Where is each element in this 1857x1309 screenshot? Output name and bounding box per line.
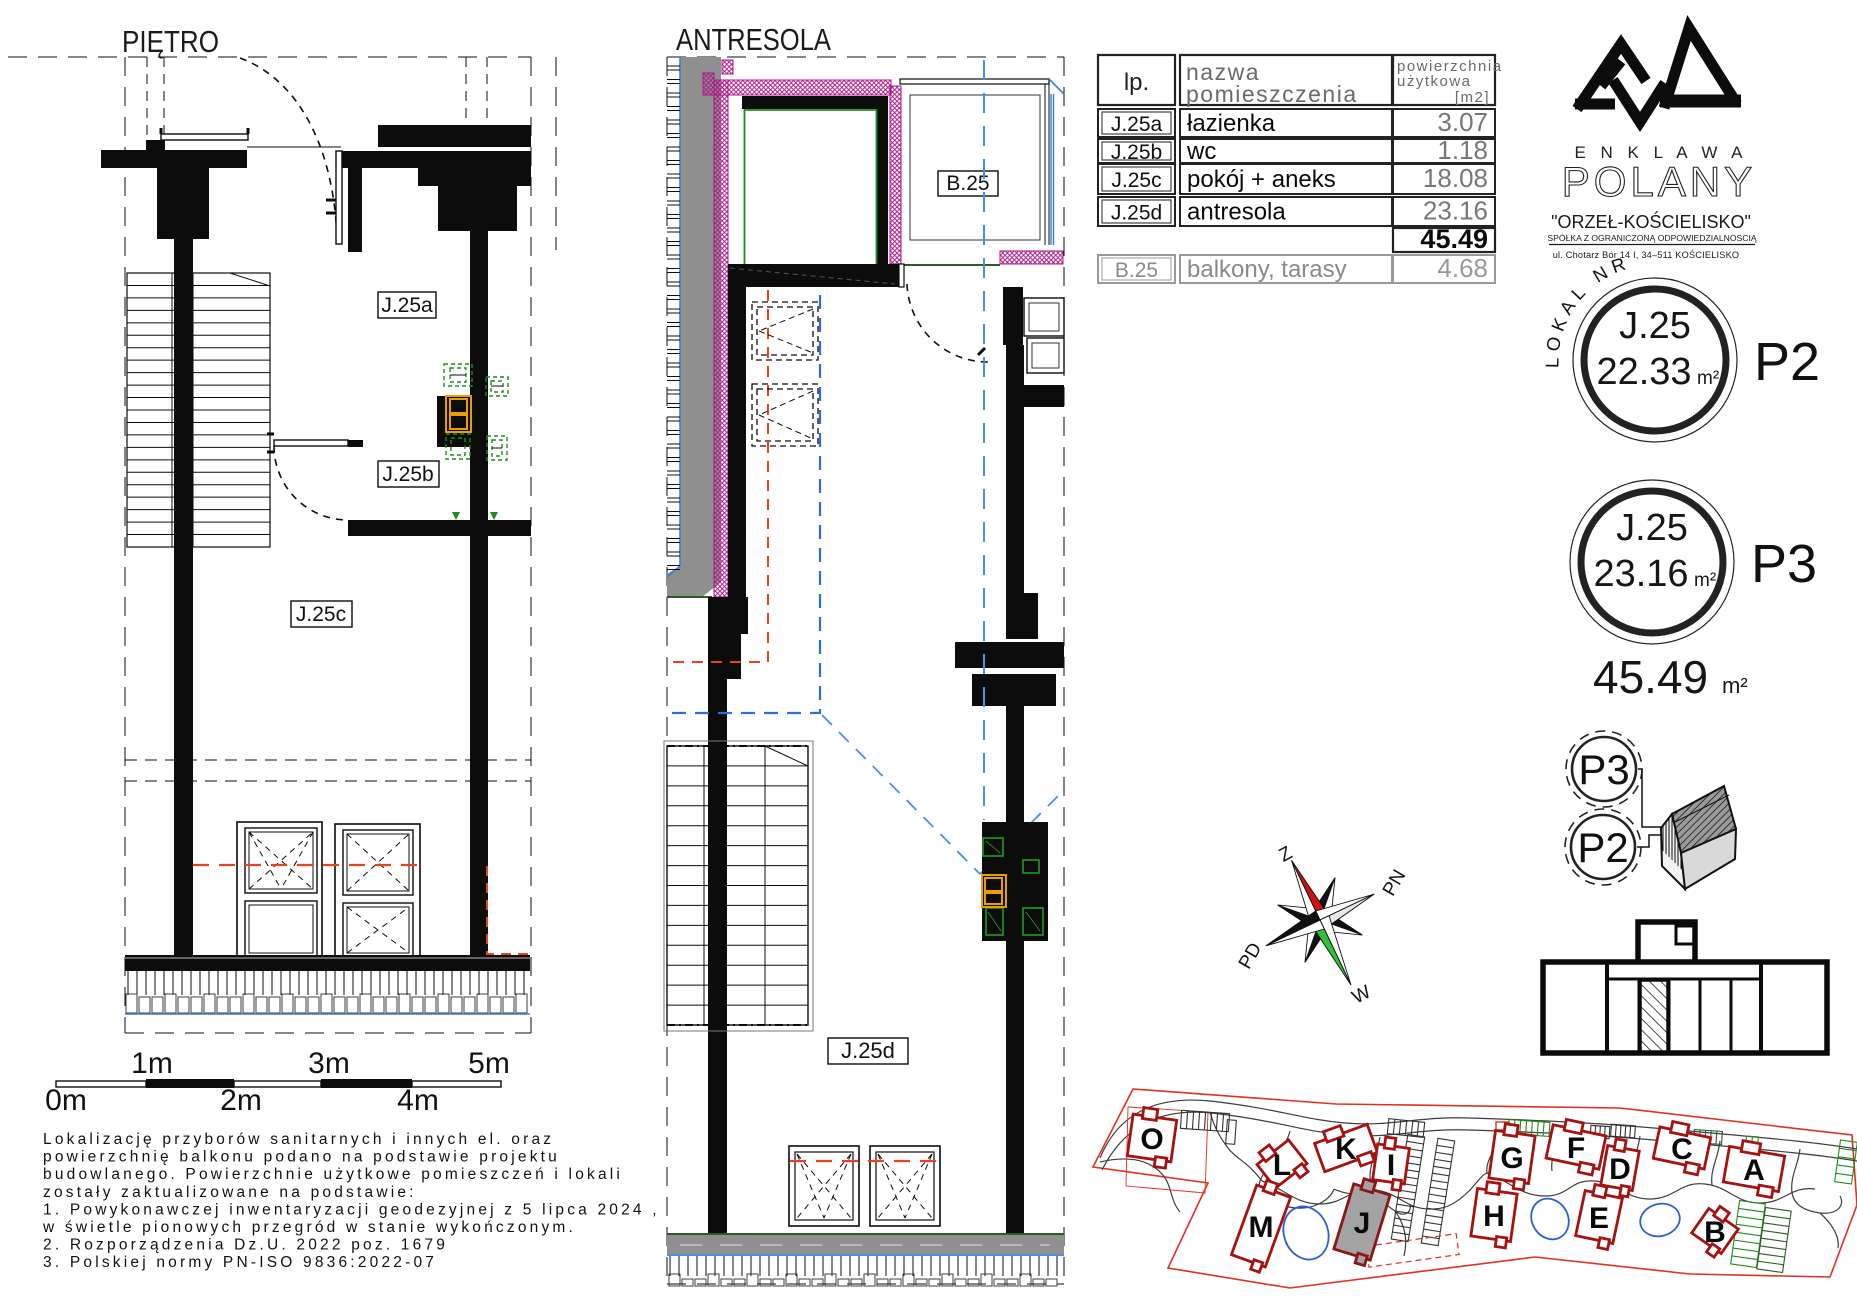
svg-text:łazienka: łazienka	[1187, 110, 1276, 137]
svg-text:J.25b: J.25b	[382, 463, 433, 486]
svg-text:B.25: B.25	[1115, 259, 1158, 282]
svg-text:ANTRESOLA: ANTRESOLA	[676, 22, 831, 57]
svg-text:1. Powykonawczej inwentaryzacj: 1. Powykonawczej inwentaryzacji geodezyj…	[43, 1201, 660, 1218]
svg-text:2m: 2m	[220, 1084, 262, 1117]
svg-text:POLANY: POLANY	[1562, 158, 1756, 205]
svg-text:L: L	[1273, 1149, 1291, 1182]
svg-text:powierzchnię balkonu podano na: powierzchnię balkonu podano na podstawie…	[43, 1149, 560, 1166]
svg-text:45.49: 45.49	[1593, 651, 1708, 703]
svg-text:antresola: antresola	[1187, 199, 1286, 226]
svg-text:zostały zaktualizowane na pods: zostały zaktualizowane na podstawie:	[43, 1184, 417, 1201]
svg-text:J.25c: J.25c	[296, 603, 346, 626]
svg-text:2. Rozporządzenia Dz.U. 2022 p: 2. Rozporządzenia Dz.U. 2022 poz. 1679	[43, 1237, 448, 1254]
svg-text:H: H	[1483, 1200, 1505, 1233]
svg-text:1.18: 1.18	[1437, 135, 1488, 165]
svg-text:lp.: lp.	[1124, 69, 1149, 96]
svg-text:22.33: 22.33	[1596, 351, 1691, 393]
svg-text:D: D	[1609, 1153, 1631, 1186]
svg-text:3. Polskiej normy PN-ISO 9836:: 3. Polskiej normy PN-ISO 9836:2022-07	[43, 1254, 437, 1271]
svg-text:J.25d: J.25d	[1111, 202, 1162, 225]
svg-text:3.07: 3.07	[1437, 107, 1488, 137]
svg-text:P3: P3	[1578, 746, 1629, 793]
svg-text:pokój + aneks: pokój + aneks	[1187, 166, 1336, 193]
svg-text:A: A	[1743, 1154, 1765, 1187]
svg-text:18.08: 18.08	[1423, 163, 1488, 193]
svg-text:J.25a: J.25a	[381, 294, 433, 317]
svg-text:J.25: J.25	[1616, 507, 1688, 549]
svg-text:Lokalizację przyborów sanitarn: Lokalizację przyborów sanitarnych i inny…	[43, 1131, 554, 1148]
svg-text:1m: 1m	[131, 1047, 173, 1080]
svg-text:4m: 4m	[397, 1084, 439, 1117]
svg-text:P2: P2	[1754, 332, 1820, 392]
svg-text:G: G	[1500, 1142, 1523, 1175]
svg-text:23.16: 23.16	[1423, 196, 1488, 226]
svg-text:K: K	[1335, 1133, 1357, 1166]
svg-text:E: E	[1589, 1202, 1609, 1235]
svg-text:P3: P3	[1751, 534, 1817, 594]
svg-text:użytkowa: użytkowa	[1397, 73, 1472, 90]
svg-text:5m: 5m	[468, 1047, 510, 1080]
svg-text:J.25a: J.25a	[1111, 113, 1163, 136]
svg-text:0m: 0m	[45, 1084, 87, 1117]
svg-text:C: C	[1671, 1133, 1693, 1166]
svg-text:pomieszczenia: pomieszczenia	[1186, 81, 1358, 107]
svg-text:m²: m²	[1722, 673, 1748, 698]
svg-text:ul. Chotarz Bór 14 I, 34–511 K: ul. Chotarz Bór 14 I, 34–511 KOŚCIELISKO	[1553, 249, 1740, 260]
svg-text:[m2]: [m2]	[1455, 89, 1490, 106]
svg-text:SPÓŁKA Z OGRANICZONĄ ODPOWIEDZ: SPÓŁKA Z OGRANICZONĄ ODPOWIEDZIALNOSCIĄ	[1547, 233, 1756, 243]
svg-text:23.16: 23.16	[1593, 553, 1688, 595]
svg-text:PIĘTRO: PIĘTRO	[122, 24, 219, 59]
svg-text:O: O	[1140, 1123, 1163, 1156]
svg-text:I: I	[1387, 1149, 1395, 1182]
svg-text:45.49: 45.49	[1420, 224, 1488, 254]
svg-text:B: B	[1704, 1216, 1726, 1249]
svg-text:M: M	[1249, 1211, 1274, 1244]
svg-text:4.68: 4.68	[1437, 253, 1488, 283]
svg-text:"ORZEŁ-KOŚCIELISKO": "ORZEŁ-KOŚCIELISKO"	[1551, 211, 1751, 232]
svg-text:wc: wc	[1186, 138, 1216, 165]
svg-text:budowlanego. Powierzchnie użyt: budowlanego. Powierzchnie użytkowe pomie…	[43, 1166, 623, 1183]
svg-text:3m: 3m	[308, 1047, 350, 1080]
svg-text:F: F	[1567, 1132, 1585, 1165]
svg-text:P2: P2	[1577, 824, 1628, 871]
svg-text:J.25: J.25	[1619, 305, 1691, 347]
svg-text:J.25c: J.25c	[1111, 169, 1161, 192]
svg-text:balkony, tarasy: balkony, tarasy	[1187, 256, 1347, 283]
svg-text:w świetle pionowych przegród w: w świetle pionowych przegród w stanie wy…	[42, 1219, 576, 1236]
svg-text:J.25d: J.25d	[841, 1038, 895, 1063]
svg-text:J: J	[1354, 1207, 1371, 1240]
svg-text:m²: m²	[1694, 570, 1716, 591]
svg-text:m²: m²	[1697, 368, 1719, 389]
svg-text:J.25b: J.25b	[1111, 141, 1162, 164]
